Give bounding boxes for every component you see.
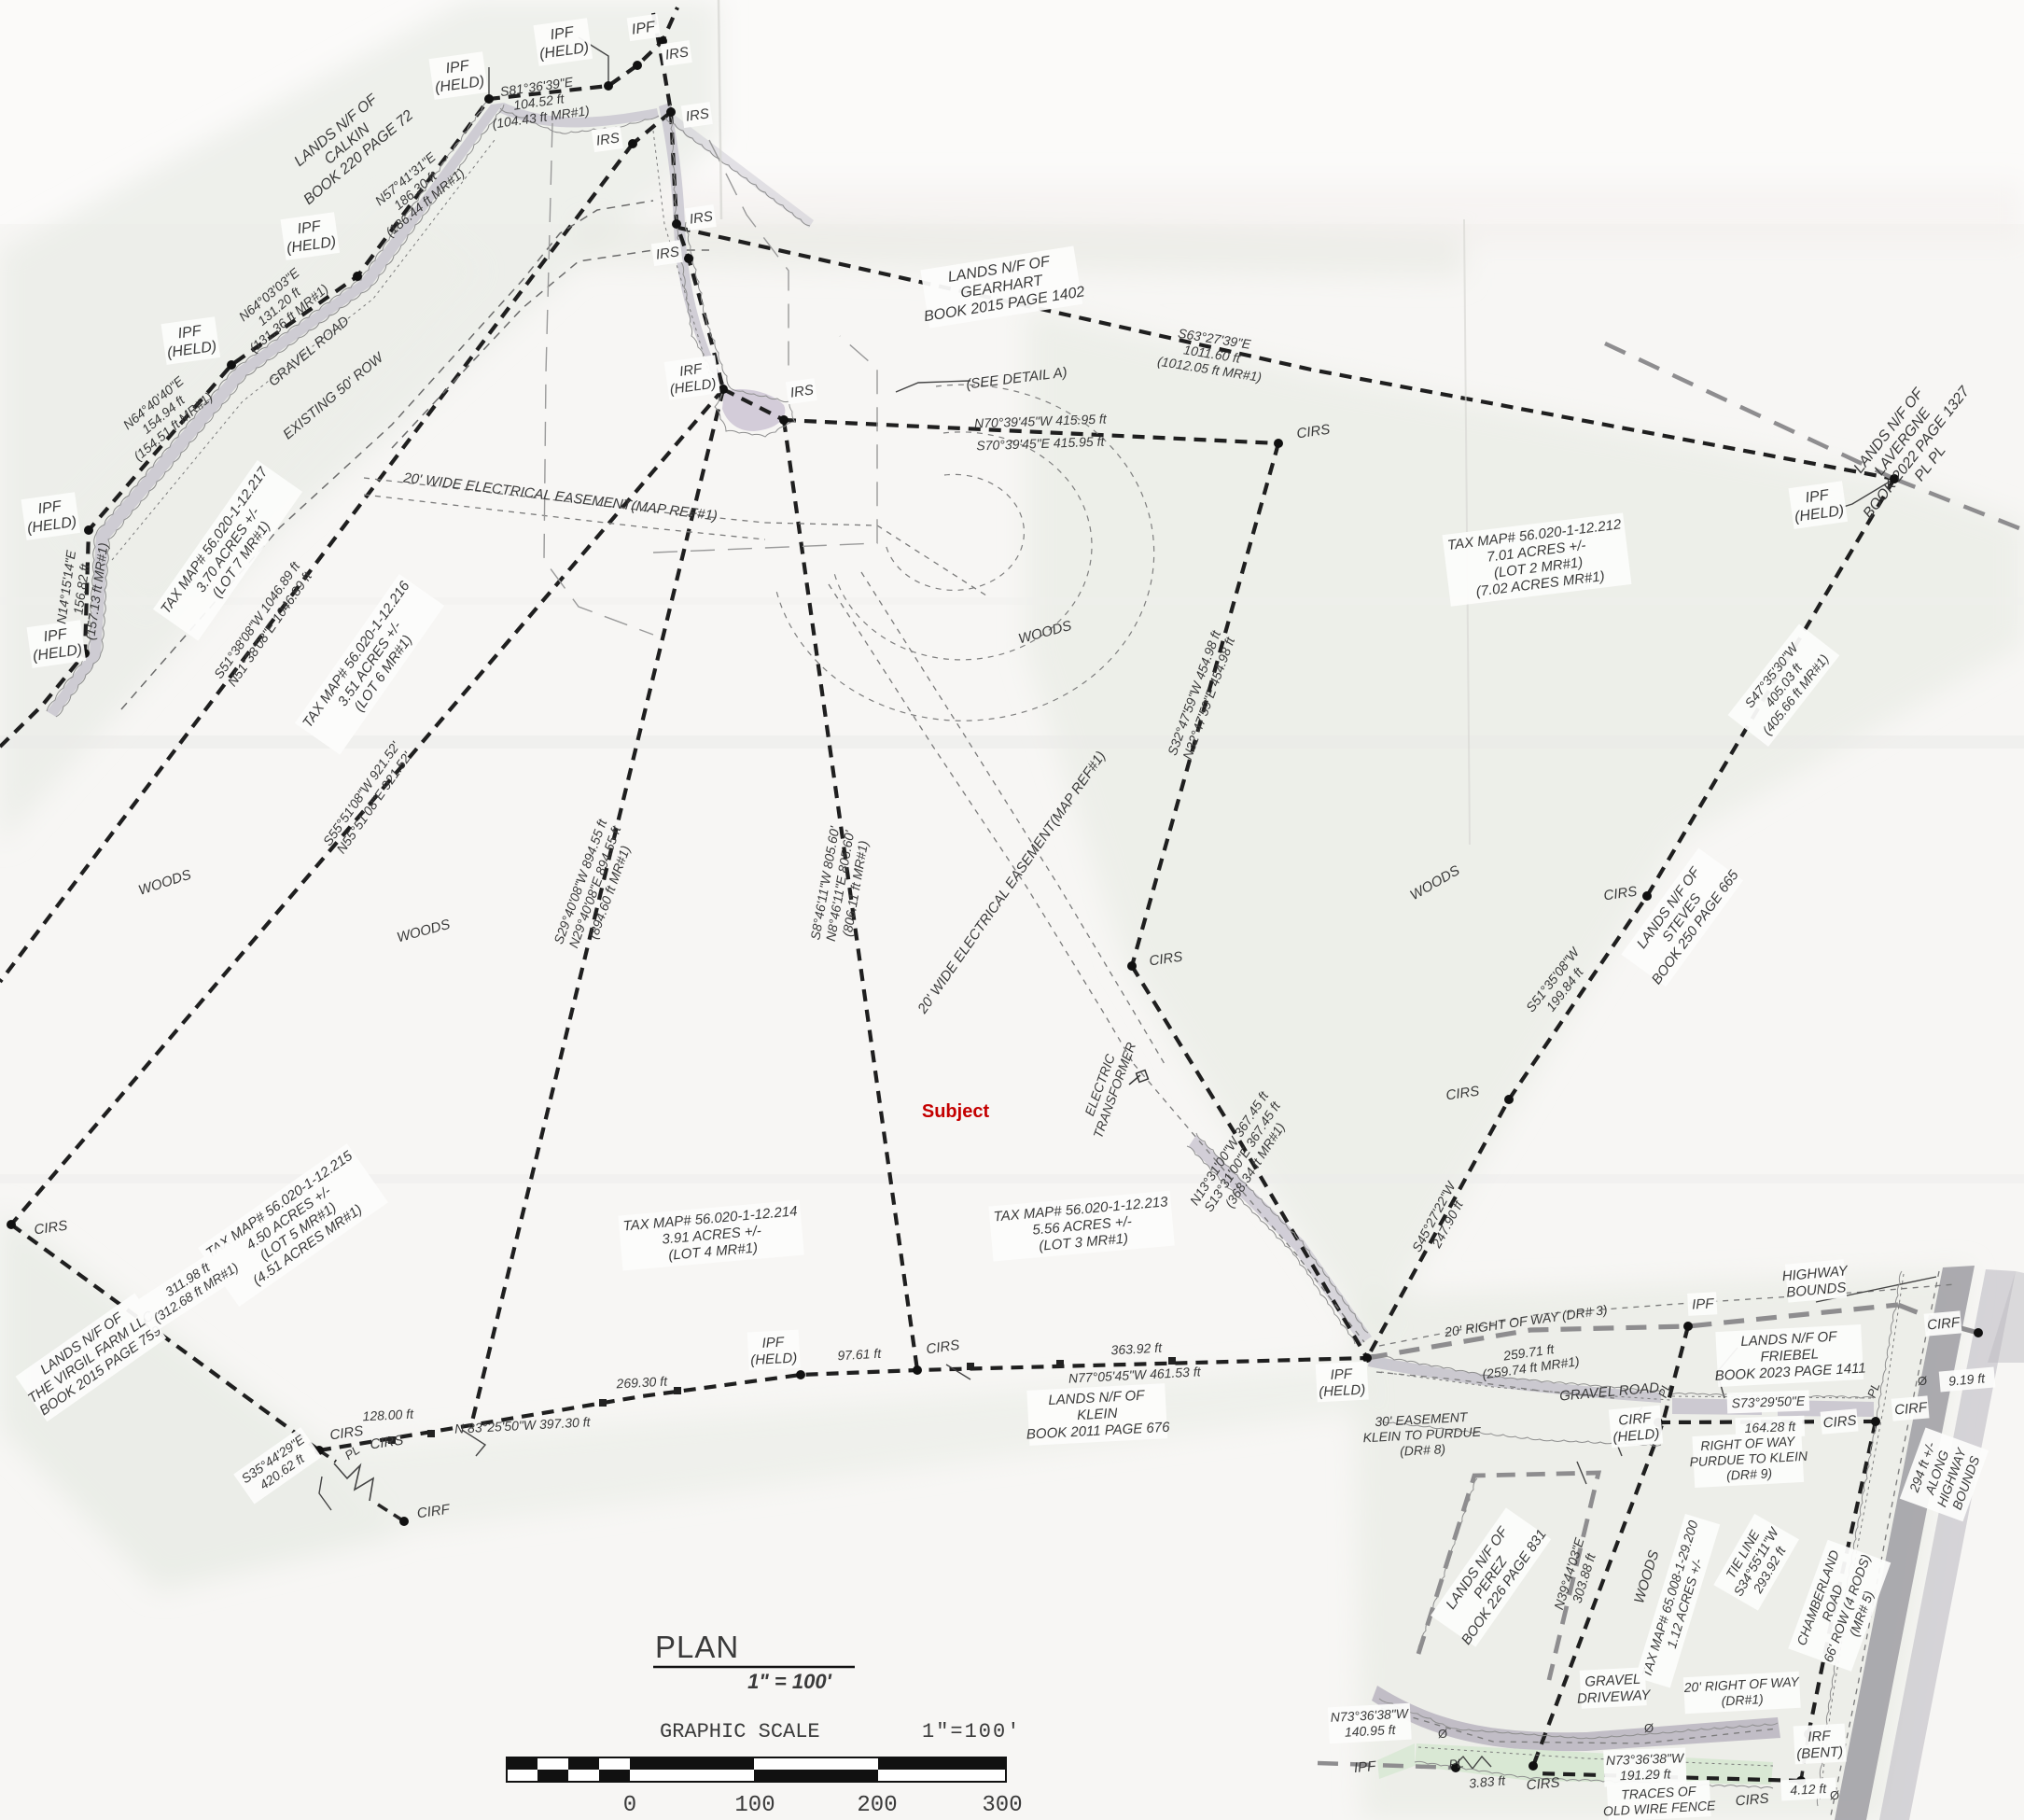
svg-text:CIRS: CIRS	[1735, 1790, 1769, 1809]
svg-text:1"=100': 1"=100'	[922, 1720, 1021, 1743]
svg-text:GRAPHIC SCALE: GRAPHIC SCALE	[660, 1720, 820, 1743]
svg-text:100: 100	[734, 1793, 775, 1818]
svg-text:PLAN: PLAN	[655, 1630, 739, 1664]
svg-text:IRS: IRS	[685, 105, 710, 124]
svg-text:269.30 ft: 269.30 ft	[615, 1374, 668, 1392]
svg-text:Ø: Ø	[1644, 1721, 1654, 1735]
svg-text:HIGHWAYBOUNDS: HIGHWAYBOUNDS	[1781, 1263, 1850, 1301]
svg-text:Ø: Ø	[1438, 1727, 1447, 1741]
svg-text:300: 300	[982, 1793, 1022, 1818]
svg-text:GRAVELDRIVEWAY: GRAVELDRIVEWAY	[1576, 1671, 1652, 1707]
svg-text:CIRF: CIRF	[1926, 1314, 1961, 1333]
svg-text:S73°29'50"E: S73°29'50"E	[1731, 1393, 1806, 1411]
svg-text:4.12 ft: 4.12 ft	[1790, 1781, 1828, 1798]
svg-text:IRS: IRS	[655, 244, 680, 262]
svg-text:CIRF: CIRF	[1893, 1399, 1928, 1418]
svg-text:PL: PL	[1448, 1756, 1464, 1771]
svg-text:Subject: Subject	[922, 1101, 990, 1122]
svg-text:0: 0	[623, 1793, 636, 1818]
svg-text:CIRS: CIRS	[1822, 1412, 1857, 1431]
svg-text:CIRS: CIRS	[1526, 1774, 1560, 1793]
svg-text:Ø: Ø	[1830, 1788, 1839, 1802]
svg-text:128.00 ft: 128.00 ft	[362, 1407, 414, 1424]
svg-text:IRS: IRS	[664, 44, 690, 63]
svg-text:363.92 ft: 363.92 ft	[1110, 1340, 1163, 1358]
svg-text:IPF: IPF	[1353, 1758, 1377, 1776]
svg-text:200: 200	[857, 1793, 897, 1818]
svg-text:Ø: Ø	[1918, 1374, 1927, 1388]
svg-text:IPF: IPF	[631, 19, 657, 37]
svg-text:IPF: IPF	[1692, 1295, 1715, 1312]
svg-text:IRS: IRS	[689, 208, 714, 227]
svg-text:97.61 ft: 97.61 ft	[837, 1346, 883, 1363]
svg-text:1" = 100': 1" = 100'	[747, 1670, 831, 1693]
svg-text:IRS: IRS	[789, 382, 815, 400]
svg-text:IRS: IRS	[595, 130, 621, 148]
